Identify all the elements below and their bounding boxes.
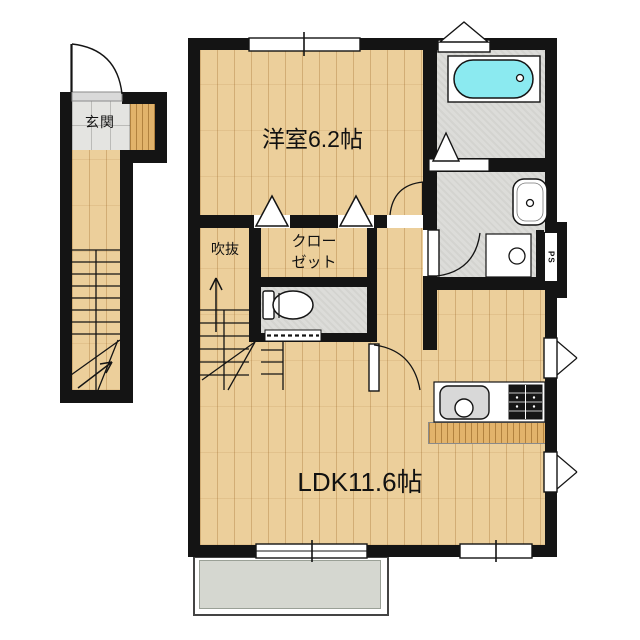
- gas-stove: [509, 385, 542, 419]
- bedroom-window: [249, 32, 360, 56]
- plan-symbols: [0, 0, 640, 640]
- floor-plan: 玄関 洋室6.2帖 吹抜 クロー ゼット LDK11.6帖 PS: [0, 0, 640, 640]
- bedroom-label: 洋室6.2帖: [210, 120, 415, 154]
- main-staircase: [200, 310, 283, 390]
- main-stairs-up-arrow: [210, 278, 222, 332]
- closet-label-line2: ゼット: [263, 252, 365, 273]
- entrance-label: 玄関: [72, 112, 128, 132]
- casement-window-upper: [544, 338, 577, 378]
- kitchen-sink: [440, 386, 489, 419]
- annex-staircase: [64, 250, 120, 390]
- ldk-window: [460, 540, 532, 562]
- bathtub: [448, 56, 540, 102]
- toilet: [263, 291, 313, 319]
- closet-label-line1: クロー: [263, 231, 365, 252]
- balcony-sliding-door: [256, 540, 367, 562]
- closet-bifold-doors: [254, 196, 374, 228]
- bathroom-window: [438, 22, 490, 52]
- ldk-label: LDK11.6帖: [230, 462, 490, 499]
- washroom-door: [423, 230, 480, 276]
- casement-window-lower: [544, 452, 577, 492]
- toilet-accordion-door: [265, 330, 321, 341]
- ldk-door: [369, 344, 420, 391]
- closet-label: クロー ゼット: [263, 231, 365, 273]
- washbasin: [513, 179, 547, 225]
- bedroom-door: [387, 182, 423, 228]
- washing-machine-pan: [486, 234, 531, 277]
- entrance-door: [72, 44, 123, 101]
- pipe-space-label: PS: [544, 232, 558, 282]
- void-label: 吹抜: [199, 239, 251, 259]
- bath-folding-door: [429, 133, 489, 171]
